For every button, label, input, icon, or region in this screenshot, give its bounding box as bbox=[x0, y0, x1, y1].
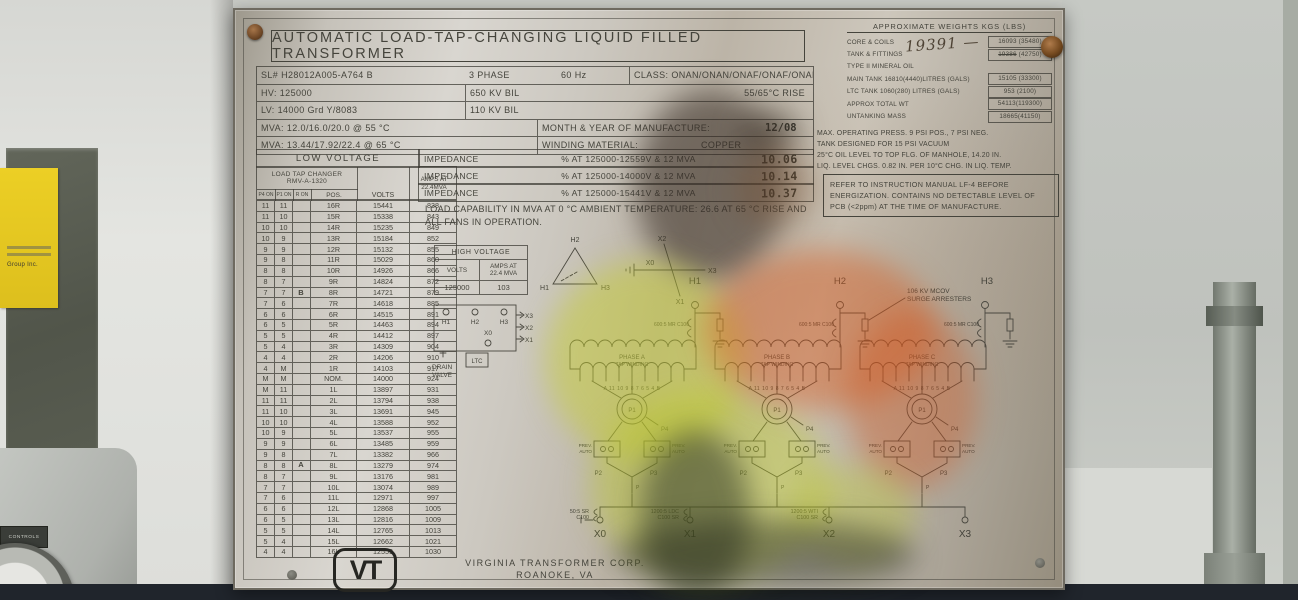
svg-text:VALVE: VALVE bbox=[432, 372, 453, 379]
tank-x2-arrow-label: X2 bbox=[525, 325, 533, 332]
ltc-row: 4M1R14103917 bbox=[257, 362, 457, 373]
ltc-row: 778R14721879 bbox=[257, 287, 457, 298]
ltc-row: 10104L13588952 bbox=[257, 416, 457, 427]
x0-terminal-label: X0 bbox=[594, 529, 607, 540]
ltc-row: 767R14618885 bbox=[257, 297, 457, 308]
cooling-class: CLASS: ONAN/ONAN/ONAF/ONAF/ONAF/ONAF bbox=[629, 67, 813, 84]
mounting-bolt bbox=[1041, 36, 1063, 58]
right-wall-bright bbox=[1062, 468, 1212, 584]
lv-bil: 110 KV BIL bbox=[465, 102, 575, 119]
weights-row: LTC TANK 1060(280) LITRES (GALS) 953 (21… bbox=[847, 86, 1052, 98]
ltc-row: 554R14412897 bbox=[257, 330, 457, 341]
pressure-line: TANK DESIGNED FOR 15 PSI VACUUM bbox=[817, 139, 1065, 150]
impedance-row: IMPEDANCE % AT 125000-15441V & 12 MVA 10… bbox=[418, 183, 814, 202]
ltc-row: 879L13176981 bbox=[257, 470, 457, 481]
sticker-text: Group Inc. bbox=[7, 262, 55, 268]
ltc-table-body: 111116R15441838111015R15338843101014R152… bbox=[256, 200, 457, 558]
tank-x1-arrow-label: X1 bbox=[525, 337, 533, 344]
impedance-value: 10.14 bbox=[761, 168, 813, 183]
spec-row-lv: LV: 14000 Grd Y/8083 110 KV BIL bbox=[257, 102, 813, 120]
sticker-text-bar bbox=[7, 253, 51, 256]
h2-bushing-label: H2 bbox=[834, 276, 846, 287]
plate-title: AUTOMATIC LOAD-TAP-CHANGING LIQUID FILLE… bbox=[271, 30, 805, 62]
spec-table: SL# H28012A005-A764 B 3 PHASE 60 Hz CLAS… bbox=[256, 66, 814, 155]
spec-row-hv: HV: 125000 650 KV BIL 55/65°C RISE bbox=[257, 85, 813, 103]
ltc-zone-b: B bbox=[292, 288, 310, 297]
ltc-row: 11112L13794938 bbox=[257, 395, 457, 406]
lv-rating: LV: 14000 Grd Y/8083 bbox=[257, 105, 465, 115]
tank-h3-label: H3 bbox=[500, 319, 509, 326]
hv-table-title: HIGH VOLTAGE bbox=[435, 246, 527, 260]
ltc-model: RMV-A-1320 bbox=[287, 178, 327, 186]
ltc-row: 442R14206910 bbox=[257, 351, 457, 362]
phase-count: 3 PHASE bbox=[465, 70, 557, 80]
untanking-mass: 18665(41150) bbox=[988, 111, 1052, 123]
ltc-row: 5415L126621021 bbox=[257, 535, 457, 546]
ltc-row: 666R14515891 bbox=[257, 308, 457, 319]
mounting-bolt bbox=[1035, 558, 1045, 568]
col-header-amps: AMPS AT 22.4MVA bbox=[410, 167, 458, 201]
load-capability-note: LOAD CAPABILITY IN MVA AT 0 °C AMBIENT T… bbox=[425, 203, 811, 229]
ltc-row: M111L13897931 bbox=[257, 384, 457, 395]
ltc-row: 10913R15184852 bbox=[257, 232, 457, 243]
hv-col-volts: VOLTS bbox=[435, 260, 480, 280]
ltc-row: 543R14309904 bbox=[257, 341, 457, 352]
weights-table: APPROXIMATE WEIGHTS KGS (LBS) CORE & COI… bbox=[847, 22, 1052, 123]
hv-ct-label: 600:5 MR C100 bbox=[654, 322, 689, 328]
weights-row: UNTANKING MASS 18665(41150) bbox=[847, 110, 1052, 122]
ltc-row: 888L13279974 bbox=[257, 460, 457, 471]
ltc-row: 5514L127651013 bbox=[257, 524, 457, 535]
phase-a-label: PHASE A bbox=[619, 355, 645, 361]
hv-bil: 650 KV BIL bbox=[465, 85, 575, 102]
instruction-manual-note: REFER TO INSTRUCTION MANUAL LF-4 BEFORE … bbox=[823, 174, 1059, 217]
frequency: 60 Hz bbox=[557, 70, 629, 80]
manufacturer-name: VIRGINIA TRANSFORMER CORP. ROANOKE, VA bbox=[415, 557, 695, 581]
col-header-volts: VOLTS bbox=[357, 167, 410, 201]
svg-text:SURGE ARRESTERS: SURGE ARRESTERS bbox=[907, 296, 972, 303]
ltc-row: 996L13485959 bbox=[257, 438, 457, 449]
mounting-bolt bbox=[287, 570, 297, 580]
manufacture-date-label: MONTH & YEAR OF MANUFACTURE: bbox=[537, 120, 761, 137]
tank-h2-label: H2 bbox=[471, 319, 480, 326]
hv-rating: HV: 125000 bbox=[257, 88, 465, 98]
tank-outline-diagram: H1 H2 H3 X0 X3 X2 X1 LTC DRAIN VALVE bbox=[430, 291, 530, 386]
mva-55c: MVA: 12.0/16.0/20.0 @ 55 °C bbox=[257, 123, 537, 133]
ltc-compartment-label: LTC bbox=[472, 359, 484, 365]
svg-text:C100 SR: C100 SR bbox=[797, 515, 819, 521]
ltc-row: 1095L13537955 bbox=[257, 427, 457, 438]
impedance-value: 10.06 bbox=[761, 151, 813, 166]
ltc-row: 879R14824872 bbox=[257, 276, 457, 287]
h1-bushing-label: H1 bbox=[689, 276, 701, 287]
x2-terminal-label: X2 bbox=[823, 529, 836, 540]
tank-h1-label: H1 bbox=[442, 319, 451, 326]
ltc-row: 6612L128681005 bbox=[257, 503, 457, 514]
temp-rise: 55/65°C RISE bbox=[575, 88, 813, 98]
ltc-table-header: LOAD TAP CHANGER RMV-A-1320 P4 ON P1 ON … bbox=[256, 166, 457, 200]
ltc-row: MMNOM.14000924 bbox=[257, 373, 457, 384]
ltc-zone-a: A bbox=[292, 460, 310, 469]
weights-row: APPROX TOTAL WT 54113(119300) bbox=[847, 98, 1052, 110]
ltc-row: 7611L12971997 bbox=[257, 492, 457, 503]
ltc-row: 111116R15441838 bbox=[257, 200, 457, 211]
sticker-text-bar bbox=[7, 246, 51, 249]
transformer-nameplate: AUTOMATIC LOAD-TAP-CHANGING LIQUID FILLE… bbox=[233, 8, 1065, 590]
ltc-row: 9811R15029860 bbox=[257, 254, 457, 265]
impedance-value: 10.37 bbox=[761, 185, 813, 200]
ltc-row: 6513L128161009 bbox=[257, 514, 457, 525]
pressure-line: MAX. OPERATING PRESS. 9 PSI POS., 7 PSI … bbox=[817, 128, 1065, 139]
ltc-row: 111015R15338843 bbox=[257, 211, 457, 222]
ltc-tank-weight: 953 (2100) bbox=[988, 86, 1052, 98]
tank-x3-arrow-label: X3 bbox=[525, 313, 533, 320]
delta-h2-label: H2 bbox=[571, 237, 580, 244]
ltc-row: 101014R15235849 bbox=[257, 222, 457, 233]
surge-arrester-note: 106 KV MCOV bbox=[907, 288, 950, 295]
x3-terminal-label: X3 bbox=[959, 529, 972, 540]
pressure-line: 25°C OIL LEVEL TO TOP FLG. OF MANHOLE, 1… bbox=[817, 150, 1065, 161]
wall-shadow bbox=[210, 0, 233, 600]
phase-b-label: PHASE B bbox=[764, 355, 790, 361]
hv-ct-label: 600:5 MR C100 bbox=[799, 322, 834, 328]
pressure-line: LIQ. LEVEL CHGS. 0.82 IN. PER 10°C CHG. … bbox=[817, 161, 1065, 172]
svg-text:C100 SR: C100 SR bbox=[658, 515, 680, 521]
spec-row-mva55: MVA: 12.0/16.0/20.0 @ 55 °C MONTH & YEAR… bbox=[257, 120, 813, 138]
manufacture-date-value: 12/08 bbox=[761, 122, 813, 134]
svg-text:C100: C100 bbox=[576, 515, 589, 521]
ltc-row: 987L13382966 bbox=[257, 449, 457, 460]
serial-number: SL# H28012A005-A764 B bbox=[257, 70, 465, 80]
winding-schematic: TAP WINDING A 11 10 9 8 7 6 5 4 B P1 P4 … bbox=[555, 273, 1035, 558]
vt-logo: VT bbox=[333, 548, 397, 592]
right-edge-wall bbox=[1283, 0, 1298, 600]
hv-ct-label: 600:5 MR C100 bbox=[944, 322, 979, 328]
hv-mini-table: HIGH VOLTAGE VOLTS AMPS AT 22.4 MVA 1250… bbox=[434, 245, 528, 295]
weights-row: MAIN TANK 16810(4440)LITRES (GALS) 15105… bbox=[847, 73, 1052, 85]
drain-valve-label: DRAIN bbox=[432, 364, 453, 371]
weights-title: APPROXIMATE WEIGHTS KGS (LBS) bbox=[847, 22, 1052, 33]
ltc-row: 11103L13691945 bbox=[257, 405, 457, 416]
yellow-warning-sticker: Group Inc. bbox=[0, 168, 58, 308]
ltc-row: 8810R14926866 bbox=[257, 265, 457, 276]
gauge-equipment-box: CONTROLS bbox=[0, 448, 137, 600]
ltc-title: LOAD TAP CHANGER bbox=[272, 171, 343, 179]
mounting-bolt bbox=[247, 24, 263, 40]
phase-c-label: PHASE C bbox=[909, 355, 936, 361]
total-weight: 54113(119300) bbox=[988, 98, 1052, 110]
pressure-notes: MAX. OPERATING PRESS. 9 PSI POS., 7 PSI … bbox=[817, 128, 1065, 172]
wye-x2-label: X2 bbox=[658, 236, 667, 243]
h3-bushing-label: H3 bbox=[981, 276, 993, 287]
ltc-row: 7710L13074989 bbox=[257, 481, 457, 492]
ltc-row: 655R14463894 bbox=[257, 319, 457, 330]
pipe-bracket bbox=[1206, 306, 1263, 326]
hv-col-amps: AMPS AT 22.4 MVA bbox=[480, 260, 527, 280]
ltc-row: 9912R15132855 bbox=[257, 243, 457, 254]
delta-h1-label: H1 bbox=[540, 285, 549, 292]
wye-x0-label: X0 bbox=[646, 260, 655, 267]
tank-x0-label: X0 bbox=[484, 330, 492, 337]
spec-row-serial: SL# H28012A005-A764 B 3 PHASE 60 Hz CLAS… bbox=[257, 67, 813, 85]
weights-row: TYPE II MINERAL OIL bbox=[847, 61, 1052, 73]
x1-terminal-label: X1 bbox=[684, 529, 697, 540]
main-tank-weight: 15105 (33300) bbox=[988, 73, 1052, 85]
